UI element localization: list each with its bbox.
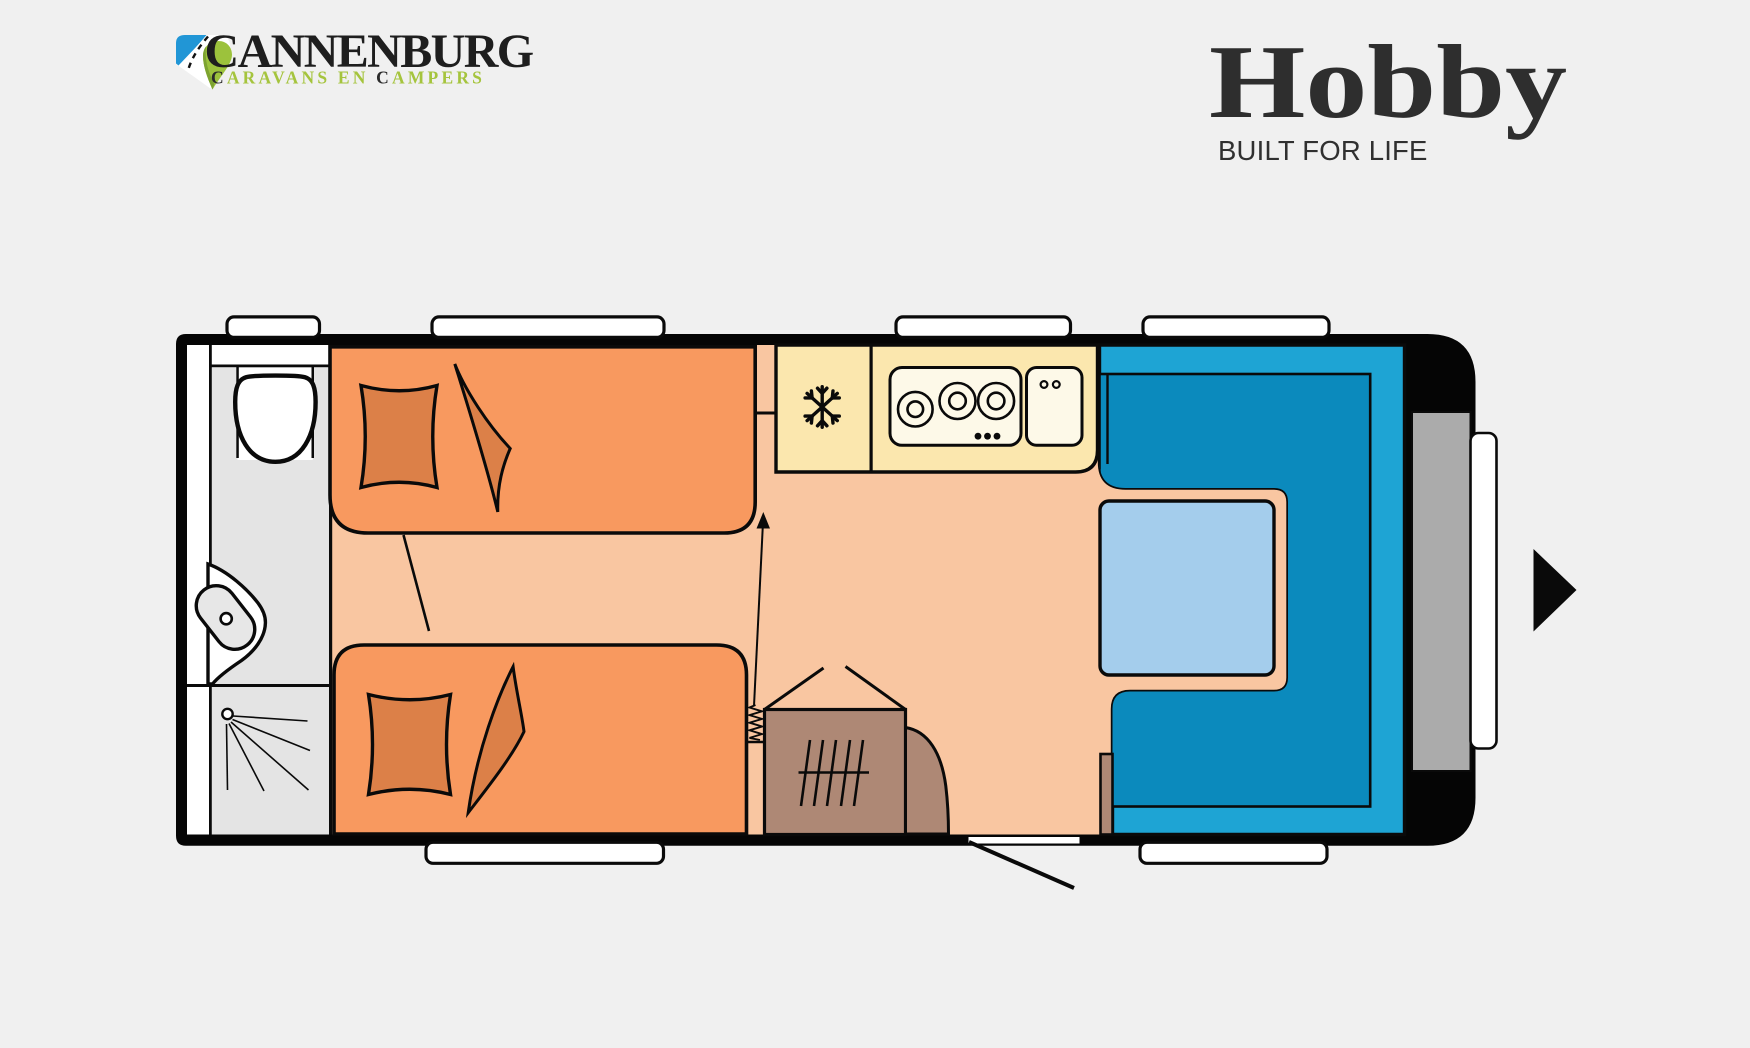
svg-text:BUILT FOR LIFE: BUILT FOR LIFE [1218, 135, 1428, 166]
svg-text:Hobby: Hobby [1209, 24, 1567, 140]
svg-text:CARAVANS EN CAMPERS: CARAVANS EN CAMPERS [211, 68, 485, 88]
